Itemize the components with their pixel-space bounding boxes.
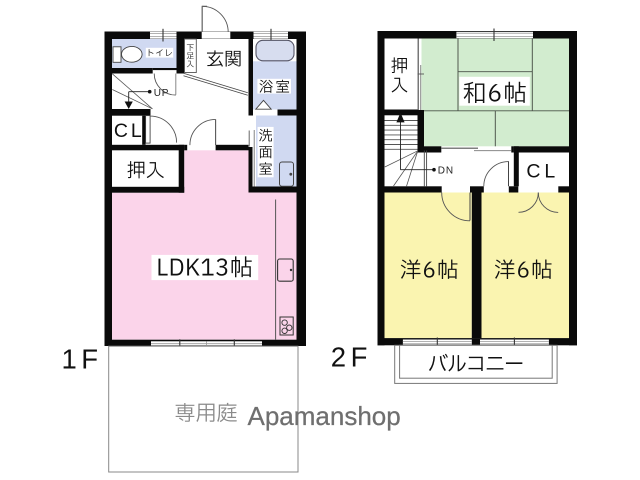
svg-text:2F: 2F xyxy=(331,342,372,373)
svg-text:CL: CL xyxy=(114,120,145,142)
svg-text:CL: CL xyxy=(526,161,559,183)
svg-text:DN: DN xyxy=(438,165,454,176)
svg-text:UP: UP xyxy=(154,88,169,99)
svg-text:1F: 1F xyxy=(62,343,103,374)
svg-text:Apamanshop: Apamanshop xyxy=(248,401,401,431)
